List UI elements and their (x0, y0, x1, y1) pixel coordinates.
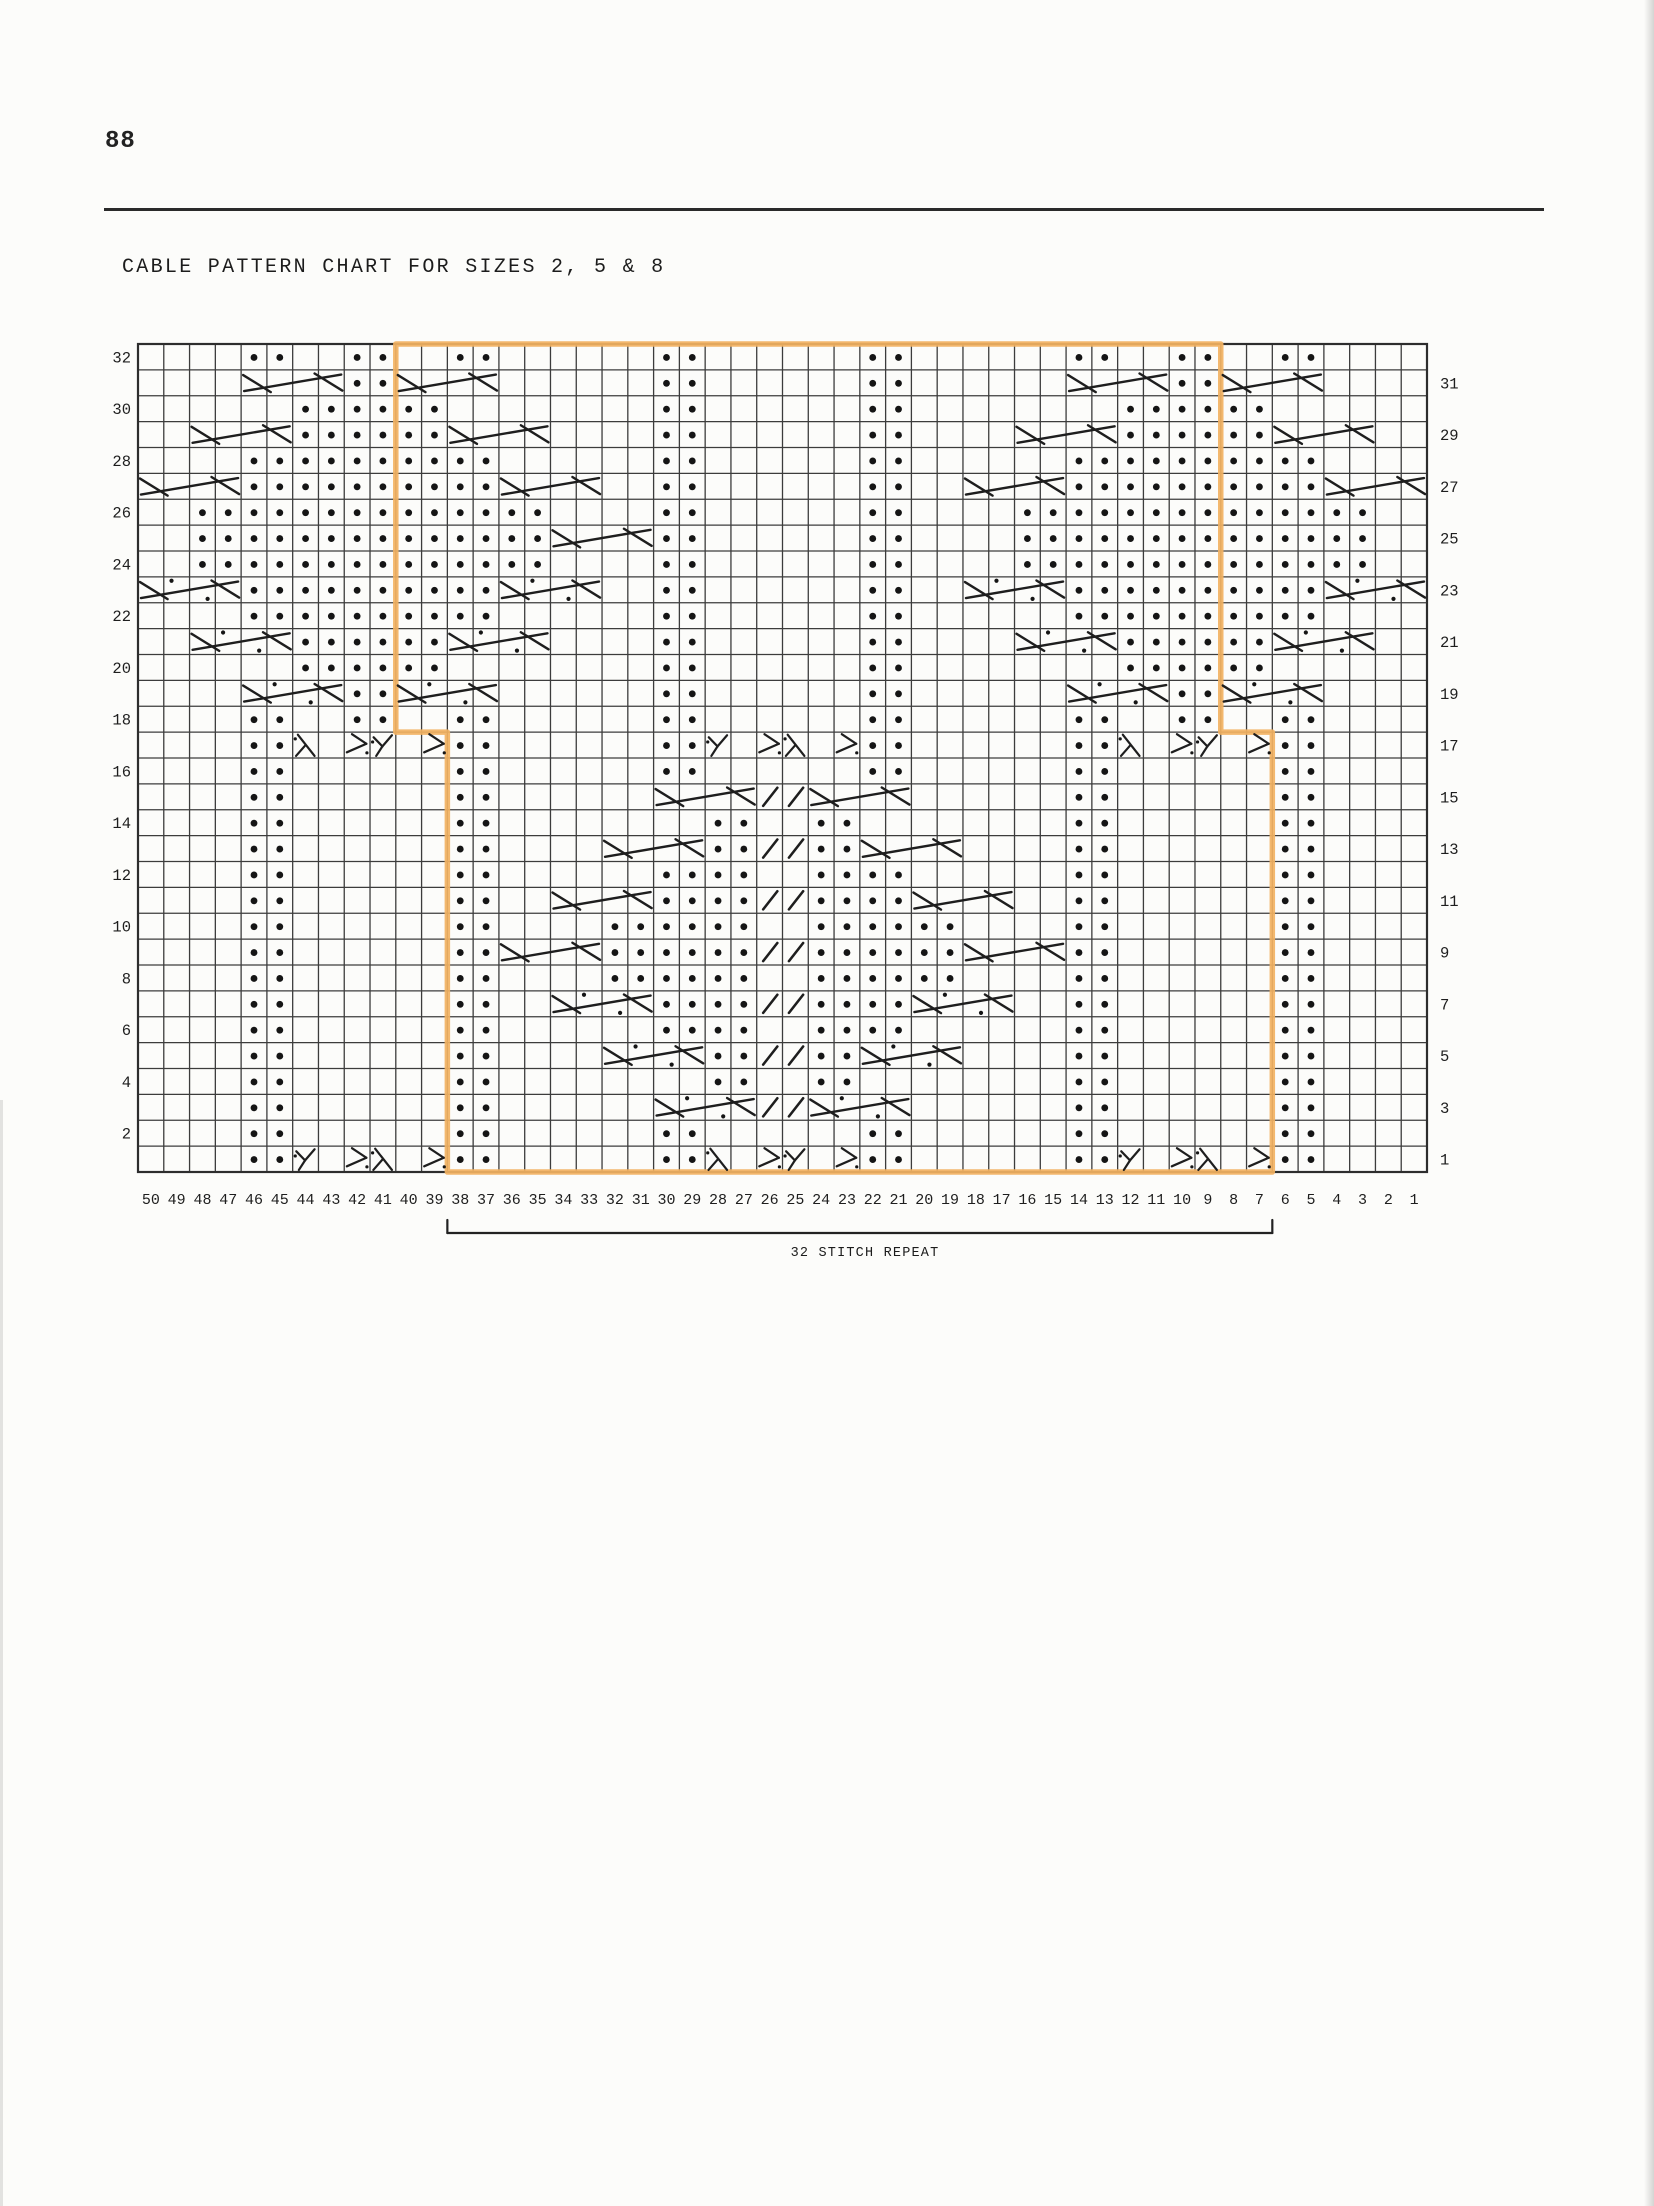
repeat-bracket (447, 1220, 1272, 1233)
svg-text:4: 4 (1332, 1192, 1341, 1209)
row-numbers-left: 3230282624222018161412108642 (112, 349, 131, 1143)
svg-text:42: 42 (348, 1192, 366, 1209)
svg-text:8: 8 (122, 970, 131, 988)
svg-text:14: 14 (112, 815, 131, 833)
svg-text:47: 47 (219, 1192, 237, 1209)
svg-text:10: 10 (112, 919, 131, 937)
svg-text:14: 14 (1070, 1192, 1088, 1209)
grid-lines (138, 344, 1427, 1172)
svg-text:38: 38 (451, 1192, 469, 1209)
svg-text:35: 35 (529, 1192, 547, 1209)
svg-text:23: 23 (1440, 582, 1459, 600)
svg-text:1: 1 (1440, 1152, 1449, 1170)
svg-text:33: 33 (580, 1192, 598, 1209)
svg-text:7: 7 (1440, 996, 1449, 1014)
svg-text:30: 30 (657, 1192, 675, 1209)
svg-text:13: 13 (1096, 1192, 1114, 1209)
svg-text:39: 39 (425, 1192, 443, 1209)
svg-text:5: 5 (1306, 1192, 1315, 1209)
scan-edge-line (0, 1100, 3, 2206)
svg-text:21: 21 (890, 1192, 908, 1209)
stitch-numbers: 5049484746454443424140393837363534333231… (142, 1192, 1419, 1209)
svg-text:2: 2 (122, 1126, 131, 1144)
svg-text:18: 18 (112, 712, 131, 730)
svg-text:30: 30 (112, 401, 131, 419)
svg-text:49: 49 (168, 1192, 186, 1209)
svg-text:3: 3 (1358, 1192, 1367, 1209)
svg-text:24: 24 (812, 1192, 830, 1209)
svg-text:18: 18 (967, 1192, 985, 1209)
svg-text:6: 6 (122, 1022, 131, 1040)
svg-text:26: 26 (112, 505, 131, 523)
svg-text:16: 16 (112, 763, 131, 781)
svg-text:29: 29 (683, 1192, 701, 1209)
svg-text:25: 25 (1440, 531, 1459, 549)
svg-text:46: 46 (245, 1192, 263, 1209)
cable-pattern-chart: 3230282624222018161412108642312927252321… (0, 0, 1654, 2206)
svg-text:16: 16 (1018, 1192, 1036, 1209)
svg-text:8: 8 (1229, 1192, 1238, 1209)
svg-text:27: 27 (735, 1192, 753, 1209)
svg-text:27: 27 (1440, 479, 1459, 497)
svg-text:41: 41 (374, 1192, 392, 1209)
svg-text:48: 48 (193, 1192, 211, 1209)
svg-text:23: 23 (838, 1192, 856, 1209)
svg-text:17: 17 (993, 1192, 1011, 1209)
svg-text:28: 28 (709, 1192, 727, 1209)
svg-text:29: 29 (1440, 427, 1459, 445)
svg-text:11: 11 (1147, 1192, 1165, 1209)
svg-text:5: 5 (1440, 1048, 1449, 1066)
svg-text:19: 19 (941, 1192, 959, 1209)
svg-text:15: 15 (1440, 789, 1459, 807)
svg-text:44: 44 (297, 1192, 315, 1209)
svg-text:17: 17 (1440, 738, 1459, 756)
svg-text:36: 36 (503, 1192, 521, 1209)
svg-text:31: 31 (632, 1192, 650, 1209)
scan-edge-shadow (1644, 0, 1654, 2206)
svg-text:45: 45 (271, 1192, 289, 1209)
svg-text:40: 40 (400, 1192, 418, 1209)
svg-text:9: 9 (1203, 1192, 1212, 1209)
svg-text:43: 43 (322, 1192, 340, 1209)
svg-text:32: 32 (112, 349, 131, 367)
svg-text:9: 9 (1440, 945, 1449, 963)
svg-text:7: 7 (1255, 1192, 1264, 1209)
svg-text:2: 2 (1384, 1192, 1393, 1209)
svg-text:28: 28 (112, 453, 131, 471)
svg-text:19: 19 (1440, 686, 1459, 704)
svg-text:37: 37 (477, 1192, 495, 1209)
svg-text:34: 34 (554, 1192, 572, 1209)
svg-text:31: 31 (1440, 375, 1459, 393)
svg-text:24: 24 (112, 556, 131, 574)
stitch-repeat-label: 32 STITCH REPEAT (710, 1246, 1020, 1261)
svg-text:1: 1 (1410, 1192, 1419, 1209)
svg-text:22: 22 (864, 1192, 882, 1209)
svg-text:12: 12 (112, 867, 131, 885)
svg-text:13: 13 (1440, 841, 1459, 859)
svg-text:25: 25 (786, 1192, 804, 1209)
svg-text:10: 10 (1173, 1192, 1191, 1209)
svg-text:20: 20 (112, 660, 131, 678)
svg-text:20: 20 (915, 1192, 933, 1209)
svg-text:32: 32 (606, 1192, 624, 1209)
book-page: 88 CABLE PATTERN CHART FOR SIZES 2, 5 & … (0, 0, 1654, 2206)
svg-text:50: 50 (142, 1192, 160, 1209)
row-numbers-right: 312927252321191715131197531 (1440, 375, 1459, 1169)
svg-text:22: 22 (112, 608, 131, 626)
svg-text:26: 26 (761, 1192, 779, 1209)
svg-text:12: 12 (1122, 1192, 1140, 1209)
svg-text:3: 3 (1440, 1100, 1449, 1118)
svg-text:11: 11 (1440, 893, 1459, 911)
svg-text:6: 6 (1281, 1192, 1290, 1209)
svg-text:4: 4 (122, 1074, 131, 1092)
svg-text:21: 21 (1440, 634, 1459, 652)
svg-text:15: 15 (1044, 1192, 1062, 1209)
